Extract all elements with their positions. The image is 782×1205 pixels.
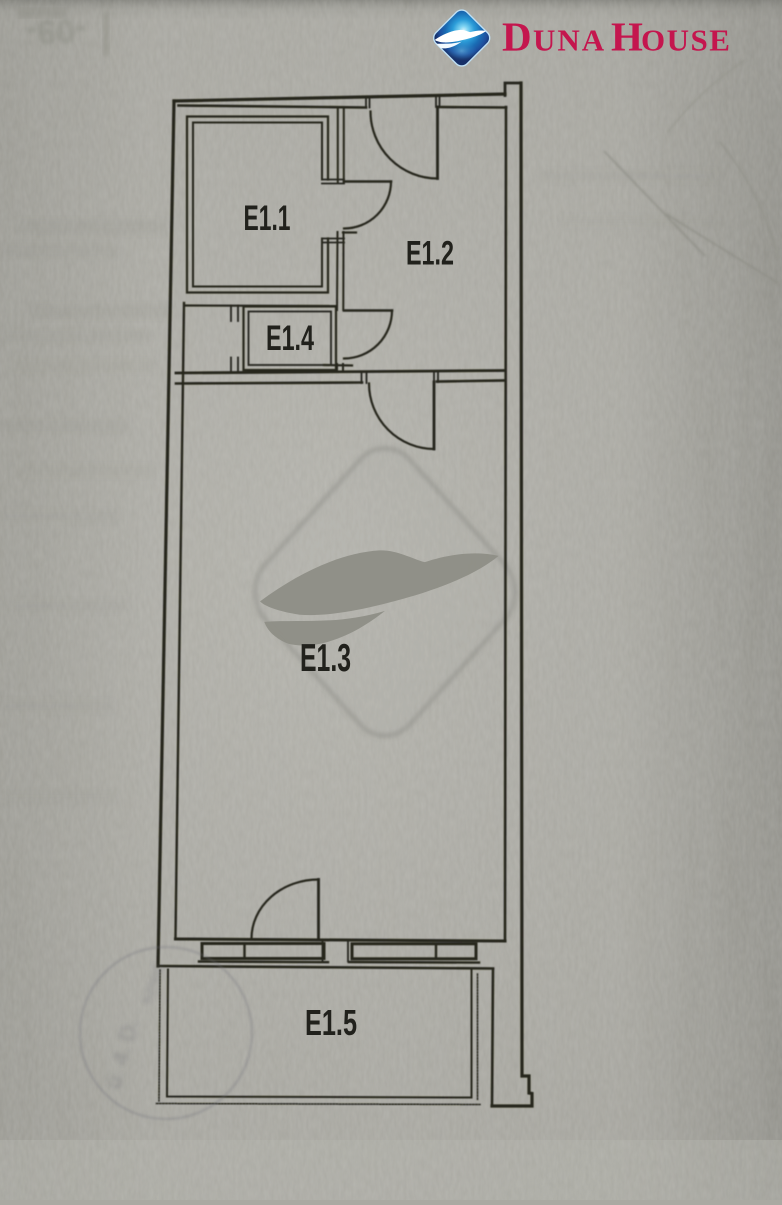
- svg-text:H: H: [611, 14, 643, 60]
- svg-text:UNA: UNA: [533, 23, 606, 58]
- svg-text:D: D: [502, 14, 532, 60]
- svg-text:E1.4: E1.4: [266, 319, 314, 358]
- svg-text:E1.5: E1.5: [305, 1002, 357, 1043]
- svg-text:E1.3: E1.3: [300, 637, 351, 680]
- svg-text:E1.2: E1.2: [406, 235, 454, 273]
- svg-text:E1.1: E1.1: [244, 199, 291, 238]
- svg-text:OUSE: OUSE: [641, 23, 731, 58]
